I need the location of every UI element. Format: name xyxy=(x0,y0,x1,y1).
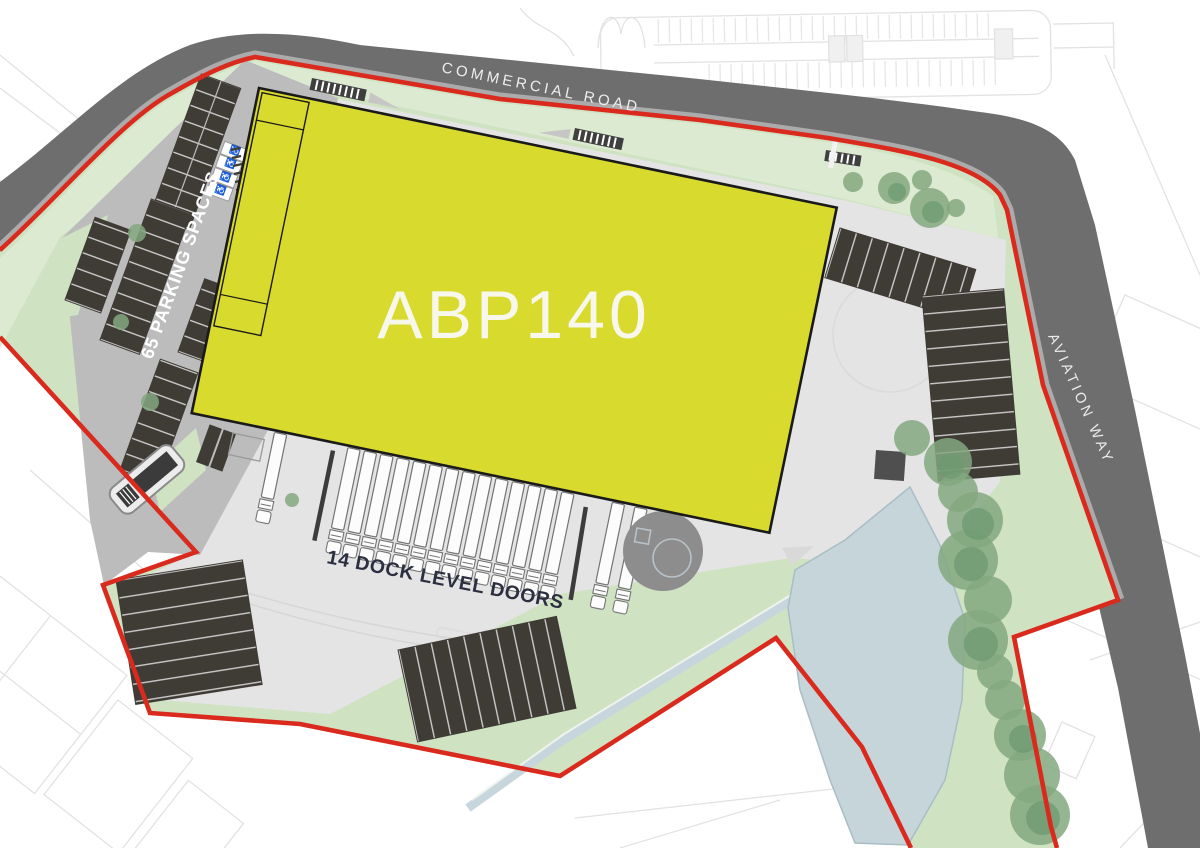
sprinkler-tank xyxy=(623,511,703,591)
substation xyxy=(874,450,906,481)
site-plan: ♿♿♿♿ xyxy=(0,0,1200,848)
site-plan-svg: ♿♿♿♿ xyxy=(0,0,1200,848)
building-label: ABP140 xyxy=(377,277,651,353)
